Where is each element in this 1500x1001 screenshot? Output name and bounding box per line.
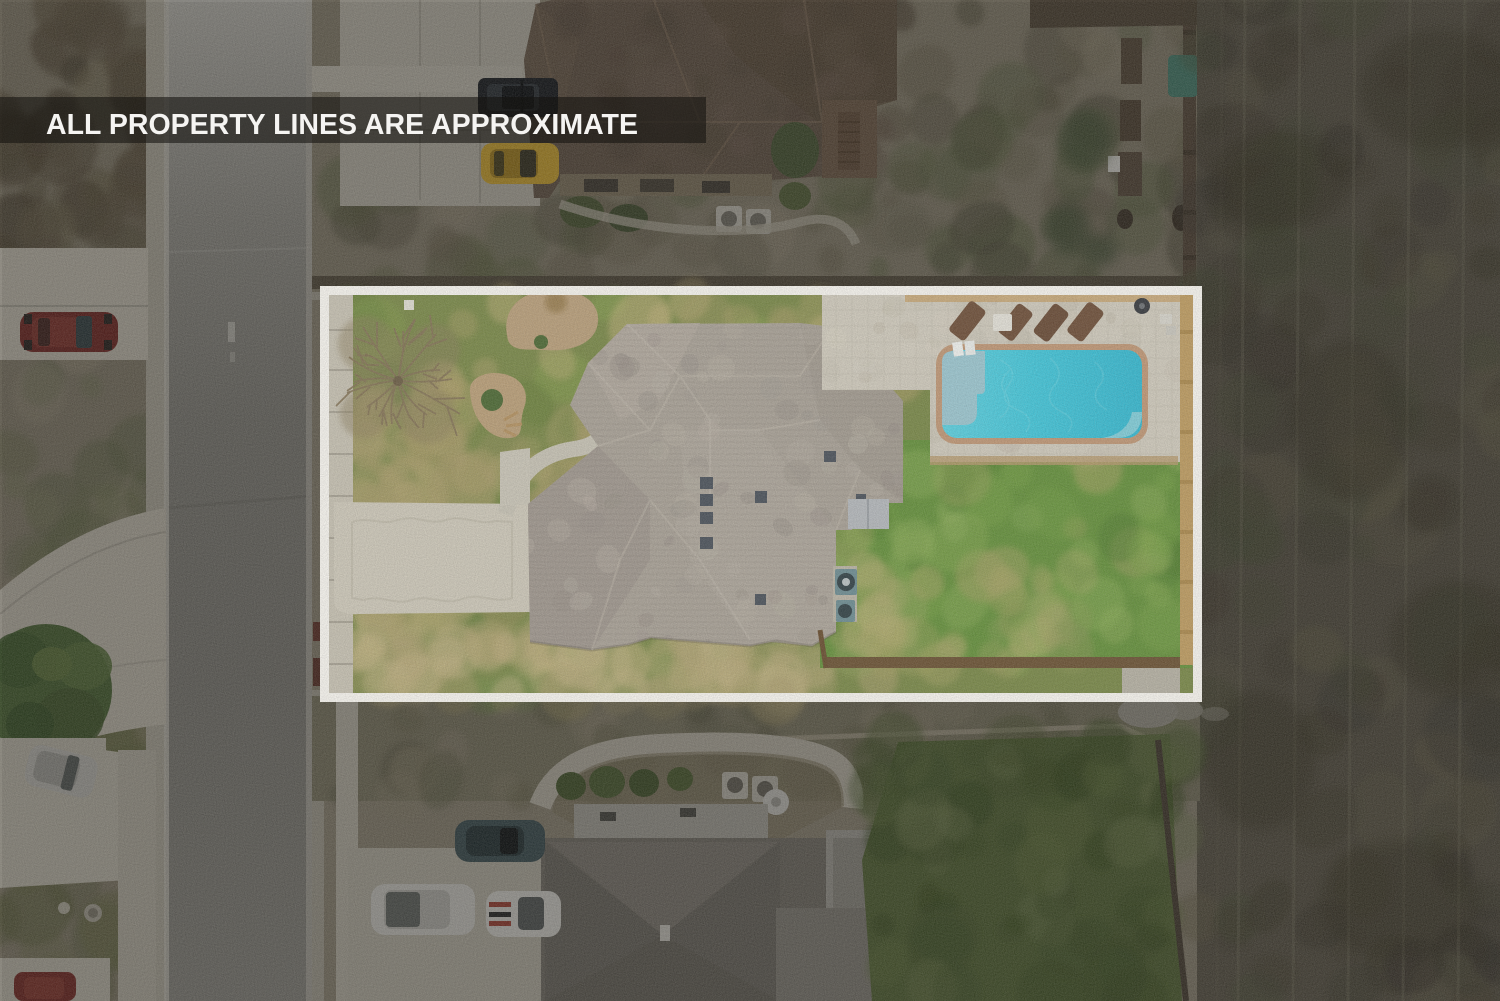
svg-text:ALL PROPERTY LINES ARE APPROXI: ALL PROPERTY LINES ARE APPROXIMATE — [46, 109, 638, 141]
